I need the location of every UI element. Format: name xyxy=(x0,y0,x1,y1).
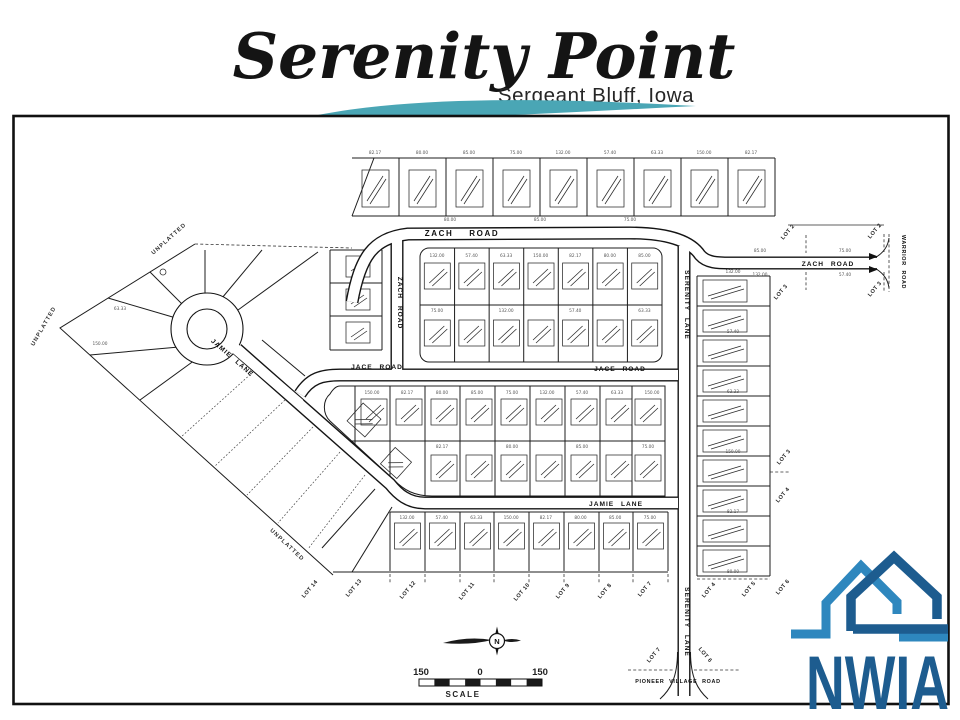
dimension-label: 85.00 xyxy=(609,515,622,521)
dimension-label: 82.17 xyxy=(745,150,758,156)
scale-zero-value: 0 xyxy=(477,667,482,678)
jamie-lane-horizontal-label: JAMIE LANE xyxy=(589,501,643,508)
dimension-label: 82.17 xyxy=(727,509,740,515)
scale-left-value: 150 xyxy=(413,667,429,678)
scale-segment xyxy=(465,679,480,686)
dimension-label: 150.00 xyxy=(725,449,740,455)
dimension-label: 63.33 xyxy=(651,150,664,156)
dimension-label: 75.00 xyxy=(624,217,637,223)
dimension-label: 63.33 xyxy=(500,253,513,259)
dimension-label: 85.00 xyxy=(463,150,476,156)
dimension-label: 57.40 xyxy=(436,515,449,521)
compass-n-label: N xyxy=(494,637,499,646)
dimension-label: 75.00 xyxy=(642,444,655,450)
dimension-label: 57.40 xyxy=(465,253,478,259)
dimension-label: 82.17 xyxy=(540,515,553,521)
dimension-label: 132.00 xyxy=(539,390,554,396)
dimension-label: 150.00 xyxy=(504,515,519,521)
dimension-label: 150.00 xyxy=(533,253,548,259)
page-title: Serenity Point xyxy=(233,19,736,93)
dimension-label: 80.00 xyxy=(416,150,429,156)
zach-road-label: ZACH ROAD xyxy=(425,229,499,238)
dimension-label: 80.00 xyxy=(727,569,740,575)
dimension-label: 150.00 xyxy=(92,341,107,347)
logo-text: NWIA xyxy=(806,641,949,720)
jace-road-west-label: JACE ROAD xyxy=(351,364,403,371)
jace-road-east-label: JACE ROAD xyxy=(594,366,646,373)
dimension-label: 132.00 xyxy=(752,272,767,278)
dimension-label: 57.40 xyxy=(727,329,740,335)
dimension-label: 57.40 xyxy=(576,390,589,396)
dimension-label: 82.17 xyxy=(569,253,582,259)
dimension-label: 57.40 xyxy=(839,272,852,278)
zach-road-vertical-label: ZACH ROAD xyxy=(396,277,403,330)
dimension-label: 150.00 xyxy=(696,150,711,156)
scale-segment xyxy=(511,679,526,686)
plat-map: 82.1780.0085.0075.00132.0057.4063.33150.… xyxy=(14,116,949,704)
dimension-label: 132.00 xyxy=(429,253,444,259)
dimension-label: 150.00 xyxy=(644,390,659,396)
dimension-label: 75.00 xyxy=(839,248,852,254)
dimension-label: 80.00 xyxy=(604,253,617,259)
scale-segment xyxy=(450,679,465,686)
dimension-label: 80.00 xyxy=(574,515,587,521)
scale-segment xyxy=(481,679,496,686)
dimension-label: 63.33 xyxy=(638,308,651,314)
dimension-label: 80.00 xyxy=(436,390,449,396)
dimension-label: 150.00 xyxy=(364,390,379,396)
dimension-label: 82.17 xyxy=(401,390,414,396)
dimension-label: 57.40 xyxy=(569,308,582,314)
scale-segment xyxy=(419,679,434,686)
scale-segments xyxy=(419,679,542,686)
dimension-label: 82.17 xyxy=(369,150,382,156)
dimension-label: 75.00 xyxy=(431,308,444,314)
serenity-lane-upper-label: SERENITY LANE xyxy=(683,270,690,340)
dimension-label: 75.00 xyxy=(506,390,519,396)
dimension-label: 80.00 xyxy=(444,217,457,223)
dimension-label: 63.33 xyxy=(114,306,127,312)
scale-segment xyxy=(527,679,542,686)
dimension-label: 63.33 xyxy=(727,389,740,395)
dimension-label: 75.00 xyxy=(510,150,523,156)
scale-segment xyxy=(434,679,449,686)
dimension-label: 132.00 xyxy=(555,150,570,156)
dimension-label: 80.00 xyxy=(506,444,519,450)
dimension-label: 85.00 xyxy=(471,390,484,396)
plat-flyer: Serenity Point Sergeant Bluff, Iowa xyxy=(0,0,960,720)
dimension-label: 85.00 xyxy=(534,217,547,223)
serenity-lane-lower-label: SERENITY LANE xyxy=(683,587,690,657)
dimension-label: 63.33 xyxy=(611,390,624,396)
dimension-label: 57.40 xyxy=(604,150,617,156)
scale-caption: SCALE xyxy=(445,690,480,699)
warrior-road-label: WARRIOR ROAD xyxy=(900,235,906,289)
dimension-label: 75.00 xyxy=(644,515,657,521)
dimension-label: 132.00 xyxy=(725,269,740,275)
pioneer-village-road-label: PIONEER VILLAGE ROAD xyxy=(635,679,721,685)
scale-segment xyxy=(496,679,511,686)
zach-road-east-label: ZACH ROAD xyxy=(802,261,855,268)
dimension-label: 85.00 xyxy=(576,444,589,450)
dimension-label: 132.00 xyxy=(399,515,414,521)
plat-svg: Serenity Point Sergeant Bluff, Iowa xyxy=(0,0,960,720)
scale-right-value: 150 xyxy=(532,667,548,678)
dimension-label: 85.00 xyxy=(638,253,651,259)
dimension-label: 132.00 xyxy=(499,308,514,314)
dimension-label: 63.33 xyxy=(470,515,483,521)
dimension-label: 82.17 xyxy=(436,444,449,450)
dimension-label: 85.00 xyxy=(754,248,767,254)
